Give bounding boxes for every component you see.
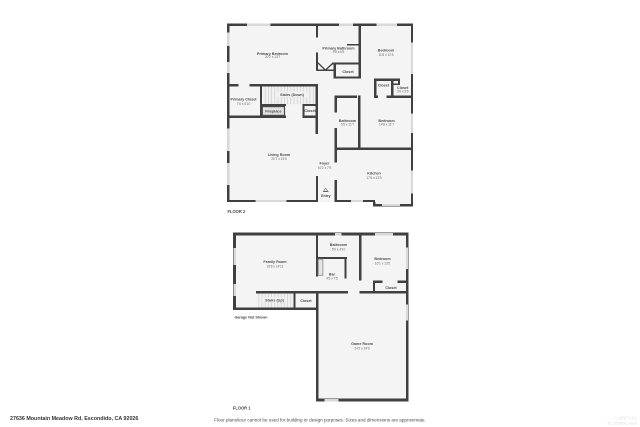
svg-text:11'8 x 12'5: 11'8 x 12'5 [379,53,394,57]
svg-text:Bathroom: Bathroom [330,243,348,247]
svg-text:Bedroom: Bedroom [374,257,391,261]
svg-text:Closet: Closet [342,70,354,74]
svg-text:20'7 x 23'5: 20'7 x 23'5 [271,157,286,161]
svg-text:Garage Not Shown: Garage Not Shown [235,315,269,319]
svg-text:24'2 x 24'9: 24'2 x 24'9 [354,346,369,350]
svg-text:Entry: Entry [321,194,331,198]
svg-text:Fireplace: Fireplace [265,109,281,113]
svg-text:Kitchen: Kitchen [367,172,381,176]
svg-text:FLOORPLANS: FLOORPLANS [607,421,637,426]
svg-text:FLOOR 2: FLOOR 2 [228,209,246,214]
svg-text:Closet: Closet [304,109,316,113]
svg-text:CUBICASA: CUBICASA [615,416,638,421]
svg-text:27636 Mountain Meadow Rd, Esco: 27636 Mountain Meadow Rd, Escondido, CA … [10,416,138,422]
svg-text:3'6 x 5'6: 3'6 x 5'6 [397,89,409,93]
svg-text:Closet: Closet [385,286,397,290]
svg-text:9'8 x 6'5: 9'8 x 6'5 [333,50,345,54]
svg-text:Family Room: Family Room [263,260,287,264]
svg-text:10'1 x 13'5: 10'1 x 13'5 [375,262,390,266]
svg-text:14'8 x 11'7: 14'8 x 11'7 [379,123,394,127]
svg-text:Stairs (Up): Stairs (Up) [265,299,284,303]
svg-text:Closet: Closet [378,83,390,87]
svg-text:Closet: Closet [300,299,312,303]
svg-text:5'5 x 11'7: 5'5 x 11'7 [341,123,354,127]
svg-text:FLOOR 1: FLOOR 1 [233,405,251,410]
svg-text:5'9 x 4'10: 5'9 x 4'10 [332,248,346,252]
svg-text:7'6 x 6'10: 7'6 x 6'10 [237,102,251,106]
svg-text:17'6 x 13'9: 17'6 x 13'9 [366,176,381,180]
svg-text:Floor plans/tour cannot be use: Floor plans/tour cannot be used for buil… [214,417,426,422]
svg-text:16'8 x 14'11: 16'8 x 14'11 [267,265,284,269]
svg-text:20'2 x 13'7: 20'2 x 13'7 [265,55,280,59]
svg-text:4'5 x 7'5: 4'5 x 7'5 [326,276,338,280]
svg-text:Game Room: Game Room [351,342,373,346]
svg-text:10'2 x 7'9: 10'2 x 7'9 [318,166,332,170]
svg-text:Stairs (Down): Stairs (Down) [280,93,305,97]
